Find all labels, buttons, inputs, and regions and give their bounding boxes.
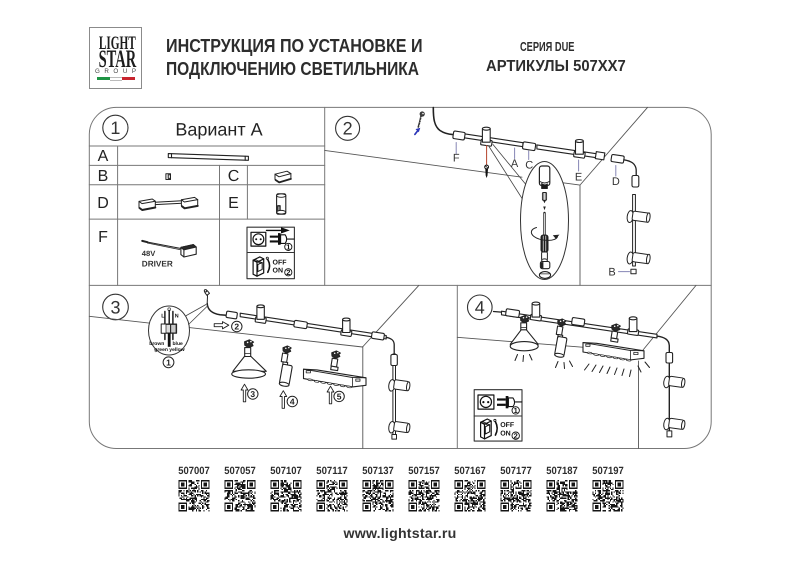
- svg-text:507177: 507177: [500, 465, 532, 477]
- svg-text:507197: 507197: [592, 465, 624, 477]
- svg-text:507117: 507117: [316, 465, 348, 477]
- svg-text:507057: 507057: [224, 465, 256, 477]
- svg-text:507157: 507157: [408, 465, 440, 477]
- svg-text:507167: 507167: [454, 465, 486, 477]
- svg-text:507107: 507107: [270, 465, 302, 477]
- svg-text:507137: 507137: [362, 465, 394, 477]
- svg-text:507007: 507007: [178, 465, 210, 477]
- svg-text:507187: 507187: [546, 465, 578, 477]
